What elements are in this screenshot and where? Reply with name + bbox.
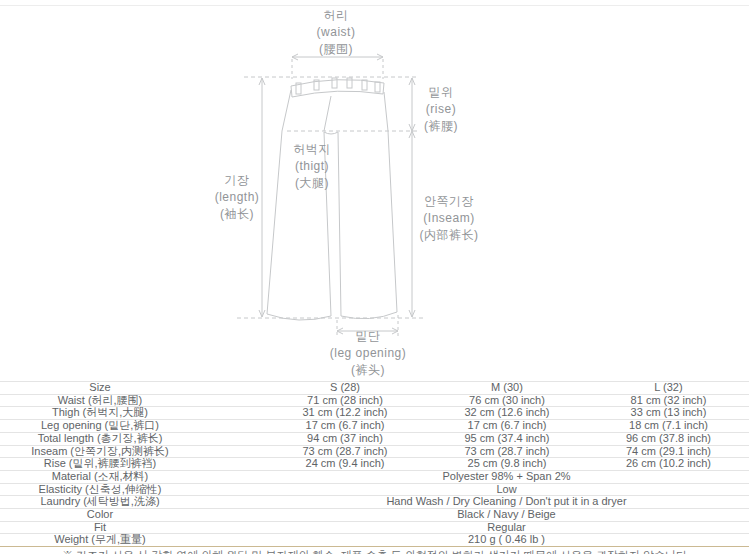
leg-opening-label-zh: (裤头) [330, 362, 407, 379]
rise-label-en: (rise) [424, 101, 458, 118]
cell-value: 25 cm (9.8 inch) [426, 458, 588, 471]
rise-label-zh: (裤腰) [424, 118, 458, 135]
thigh-label: 허벅지 (thigt) (大腿) [293, 141, 331, 192]
cell-value: 24 cm (9.4 inch) [264, 458, 426, 471]
cell-value: 96 cm (37.8 inch) [588, 432, 749, 445]
column-header-s: S (28) [264, 382, 426, 395]
row-label: Fit [0, 521, 264, 534]
length-label-ko: 기장 [215, 172, 260, 189]
row-label: Laundry (세탁방법,洗涤) [0, 496, 264, 509]
table-row-thigh: Thigh (허벅지,大腿) 31 cm (12.2 inch) 32 cm (… [0, 407, 749, 420]
cell-value: 210 g ( 0.46 lb ) [264, 534, 749, 547]
row-label: Total length (총기장,裤长) [0, 432, 264, 445]
thigh-label-en: (thigt) [293, 158, 331, 175]
cell-value: 76 cm (30 inch) [426, 394, 588, 407]
size-table-header-row: Size S (28) M (30) L (32) [0, 382, 749, 395]
inseam-label-zh: (内部裤长) [420, 227, 479, 244]
size-guide-page: 허리 (waist) (腰围) 밑위 (rise) (裤腰) 허벅지 (thig… [0, 0, 749, 554]
cell-value: 73 cm (28.7 inch) [264, 445, 426, 458]
table-row-color: Color Black / Navy / Beige [0, 509, 749, 522]
table-row-fit: Fit Regular [0, 521, 749, 534]
leg-opening-label-ko: 밑단 [330, 328, 407, 345]
rise-label-ko: 밑위 [424, 84, 458, 101]
cell-value: Low [264, 483, 749, 496]
cell-value: Black / Navy / Beige [264, 509, 749, 522]
row-label: Elasticity (신축성,伸缩性) [0, 483, 264, 496]
pants-body-outline [267, 90, 397, 320]
table-row-rise: Rise (밑위,裤腰到裤裆) 24 cm (9.4 inch) 25 cm (… [0, 458, 749, 471]
cell-value: Hand Wash / Dry Cleaning / Don't put it … [264, 496, 749, 509]
cell-value: 95 cm (37.4 inch) [426, 432, 588, 445]
waist-label-zh: (腰围) [317, 41, 356, 58]
pants-outline-drawing-icon [0, 0, 749, 381]
thigh-label-ko: 허벅지 [293, 141, 331, 158]
cell-value: 32 cm (12.6 inch) [426, 407, 588, 420]
table-row-waist: Waist (허리,腰围) 71 cm (28 inch) 76 cm (30 … [0, 394, 749, 407]
row-label: Waist (허리,腰围) [0, 394, 264, 407]
cell-value: 18 cm (7.1 inch) [588, 420, 749, 433]
table-row-material: Material (소재,材料) Polyester 98% + Span 2% [0, 470, 749, 483]
cell-value: 73 cm (28.7 inch) [426, 445, 588, 458]
table-row-weight: Weight (무게,重量) 210 g ( 0.46 lb ) [0, 534, 749, 547]
leg-opening-label: 밑단 (leg opening) (裤头) [330, 328, 407, 379]
thigh-label-zh: (大腿) [293, 175, 331, 192]
length-label-en: (length) [215, 189, 260, 206]
row-label: Color [0, 509, 264, 522]
cell-value: 17 cm (6.7 inch) [426, 420, 588, 433]
cell-value: 81 cm (32 inch) [588, 394, 749, 407]
inseam-label-en: (Inseam) [420, 210, 479, 227]
waistband [291, 78, 384, 97]
pants-measurement-diagram: 허리 (waist) (腰围) 밑위 (rise) (裤腰) 허벅지 (thig… [0, 0, 749, 381]
waist-label: 허리 (waist) (腰围) [317, 7, 356, 58]
cell-value: Polyester 98% + Span 2% [264, 470, 749, 483]
cell-value: 26 cm (10.2 inch) [588, 458, 749, 471]
inseam-label: 안쪽기장 (Inseam) (内部裤长) [420, 193, 479, 244]
length-label: 기장 (length) (袖长) [215, 172, 260, 223]
row-label: Rise (밑위,裤腰到裤裆) [0, 458, 264, 471]
column-header-m: M (30) [426, 382, 588, 395]
inseam-label-ko: 안쪽기장 [420, 193, 479, 210]
cell-value: Regular [264, 521, 749, 534]
rise-inseam-dimension-line [409, 78, 415, 317]
waist-label-en: (waist) [317, 24, 356, 41]
row-label: Thigh (허벅지,大腿) [0, 407, 264, 420]
waist-label-ko: 허리 [317, 7, 356, 24]
column-header-size: Size [0, 382, 264, 395]
row-label: Inseam (안쪽기장,内测裤长) [0, 445, 264, 458]
column-header-l: L (32) [588, 382, 749, 395]
cell-value: 17 cm (6.7 inch) [264, 420, 426, 433]
table-row-leg-opening: Leg opening (밑단,裤口) 17 cm (6.7 inch) 17 … [0, 420, 749, 433]
cell-value: 74 cm (29.1 inch) [588, 445, 749, 458]
table-row-elasticity: Elasticity (신축성,伸缩性) Low [0, 483, 749, 496]
row-label: Weight (무게,重量) [0, 534, 264, 547]
cell-value: 94 cm (37 inch) [264, 432, 426, 445]
cell-value: 31 cm (12.2 inch) [264, 407, 426, 420]
rise-label: 밑위 (rise) (裤腰) [424, 84, 458, 135]
row-label: Leg opening (밑단,裤口) [0, 420, 264, 433]
table-row-inseam: Inseam (안쪽기장,内测裤长) 73 cm (28.7 inch) 73 … [0, 445, 749, 458]
table-row-total-length: Total length (총기장,裤长) 94 cm (37 inch) 95… [0, 432, 749, 445]
cell-value: 71 cm (28 inch) [264, 394, 426, 407]
size-table: Size S (28) M (30) L (32) Waist (허리,腰围) … [0, 381, 749, 547]
cell-value: 33 cm (13 inch) [588, 407, 749, 420]
row-label: Material (소재,材料) [0, 470, 264, 483]
length-dimension-line [259, 78, 265, 317]
leg-opening-label-en: (leg opening) [330, 345, 407, 362]
length-label-zh: (袖长) [215, 206, 260, 223]
table-row-laundry: Laundry (세탁방법,洗涤) Hand Wash / Dry Cleani… [0, 496, 749, 509]
dryer-warning-footnote: ※ 건조기 사용 시 강한 열에 의해 원단 및 부자재의 훼손, 제품 수축 … [0, 547, 749, 554]
